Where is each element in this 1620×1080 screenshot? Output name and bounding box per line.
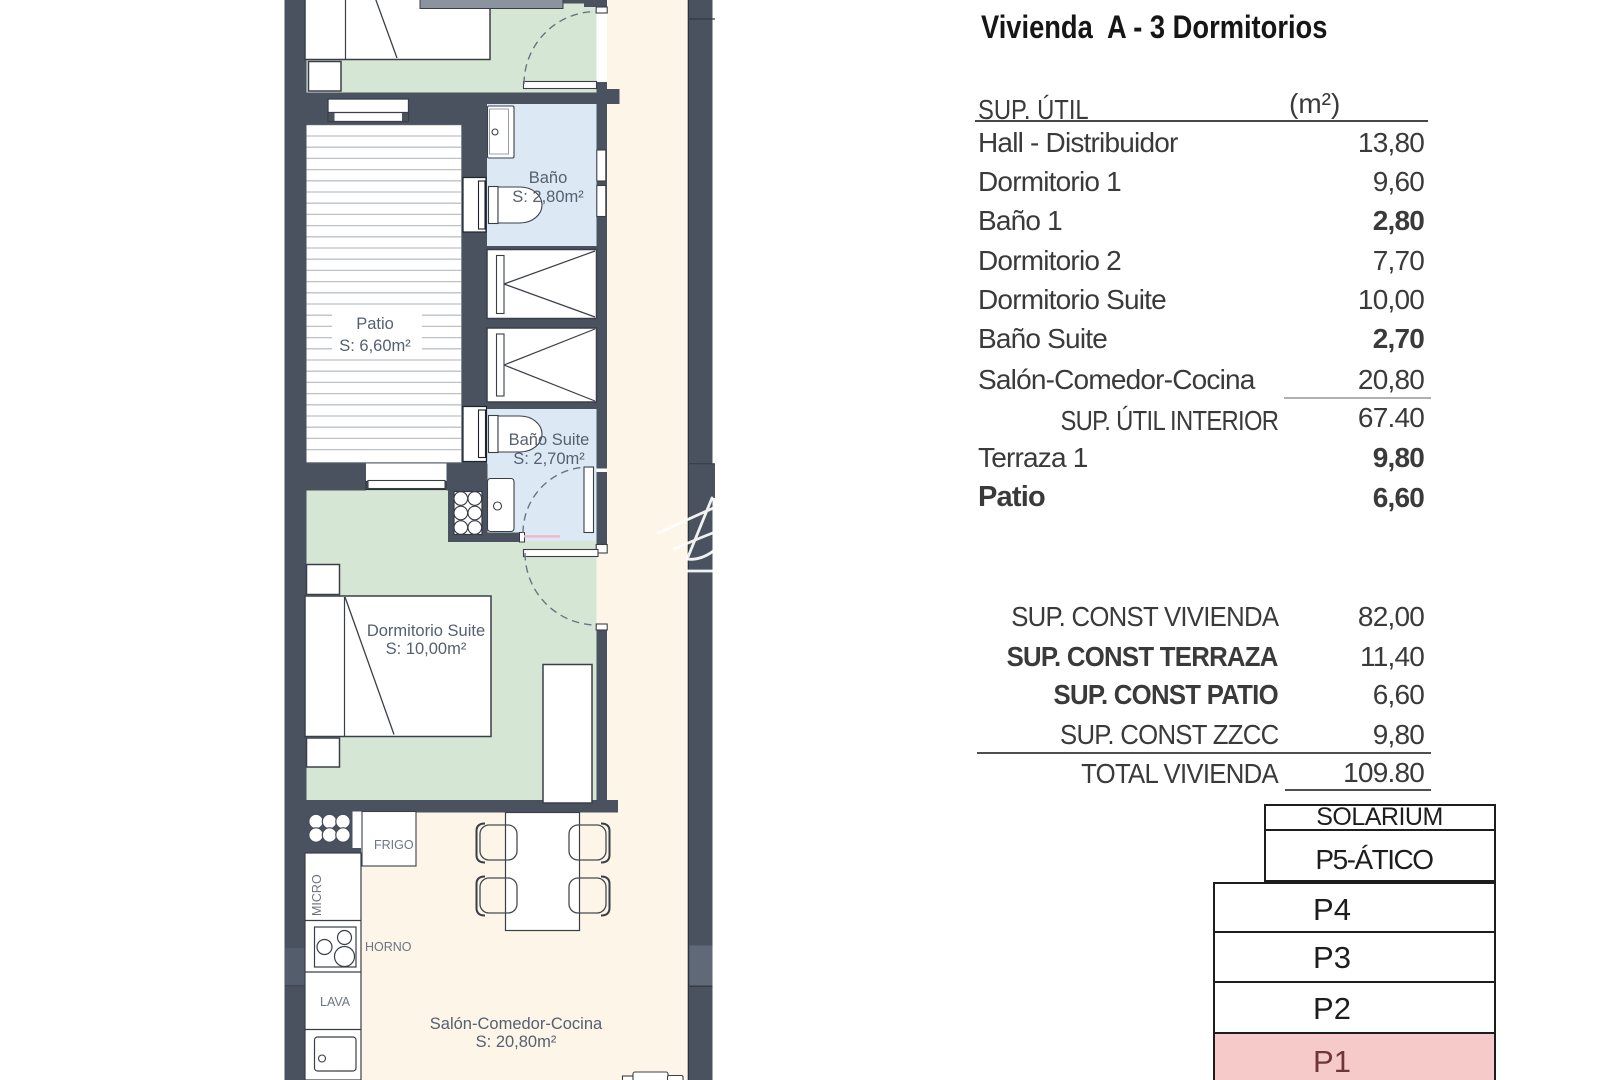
svg-text:Baño Suite: Baño Suite: [509, 431, 590, 449]
svg-text:S: 2,70m²: S: 2,70m²: [513, 450, 585, 468]
svg-text:S: 10,00m²: S: 10,00m²: [386, 640, 467, 658]
svg-text:LAVA: LAVA: [320, 995, 351, 1009]
svg-text:Patio: Patio: [356, 315, 394, 333]
svg-text:Dormitorio Suite: Dormitorio Suite: [367, 622, 485, 640]
svg-text:Baño: Baño: [529, 169, 568, 187]
svg-text:FRIGO: FRIGO: [374, 838, 414, 852]
svg-text:MICRO: MICRO: [310, 874, 324, 916]
svg-text:Salón-Comedor-Cocina: Salón-Comedor-Cocina: [430, 1015, 603, 1033]
svg-text:S: 6,60m²: S: 6,60m²: [339, 337, 411, 355]
svg-text:S: 2,80m²: S: 2,80m²: [512, 188, 584, 206]
svg-text:S: 20,80m²: S: 20,80m²: [476, 1033, 557, 1051]
svg-text:HORNO: HORNO: [365, 940, 412, 954]
